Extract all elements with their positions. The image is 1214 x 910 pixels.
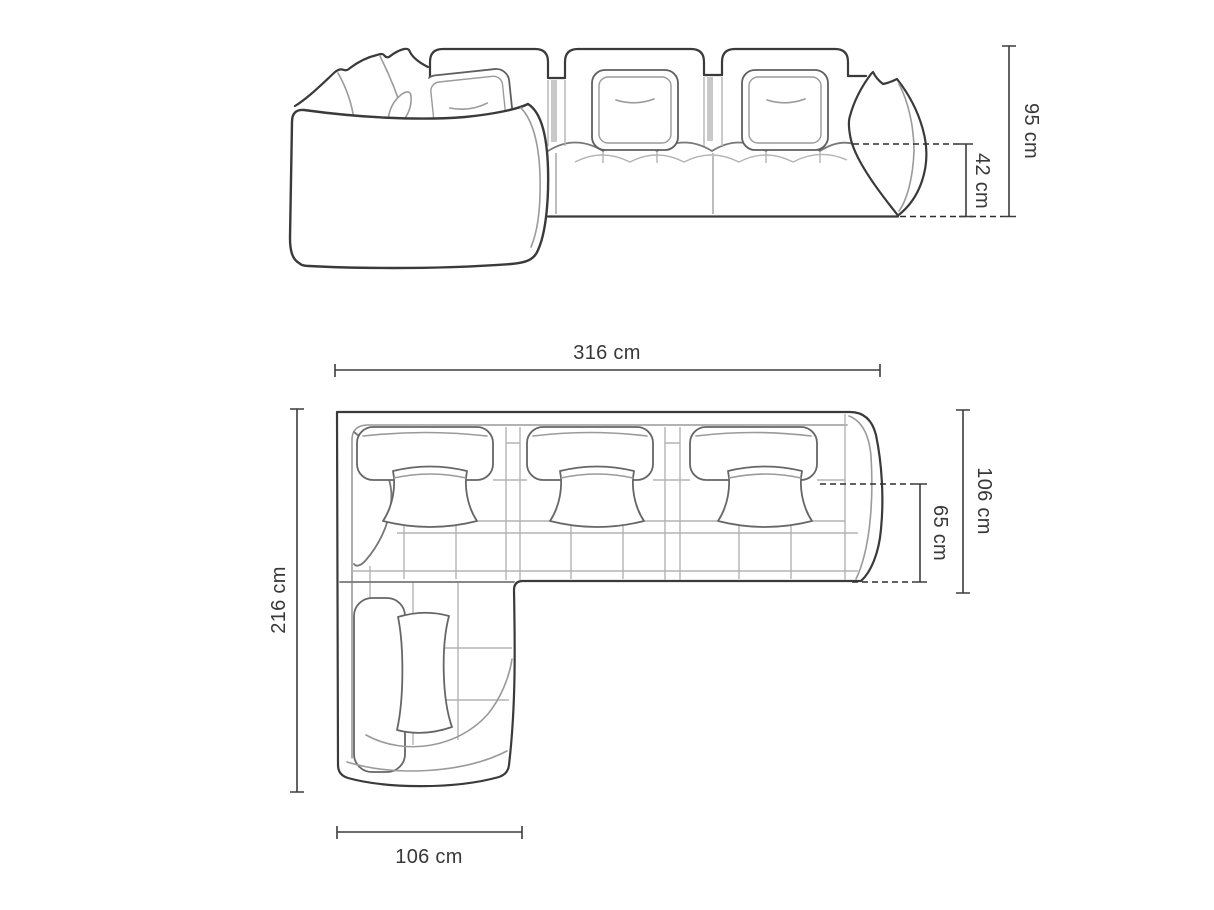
dimension-label-total-height: 95 cm: [1020, 103, 1042, 159]
dimension-line-total-width: [335, 364, 880, 377]
dimension-right-side-depth: 106 cm: [956, 410, 995, 593]
dimension-line-total-depth: [290, 409, 304, 792]
plan-seat-cushion-3: [718, 467, 812, 528]
dimension-label-total-depth: 216 cm: [268, 566, 290, 633]
dimension-line-seat-height: [959, 144, 973, 217]
dimension-line-chaise-width: [337, 826, 522, 839]
back-cushion-3: [742, 70, 828, 150]
dimension-label-chaise-width: 106 cm: [395, 846, 462, 868]
diagram-svg: 95 cm 42 cm: [0, 0, 1214, 910]
dimension-line-total-height: [1002, 46, 1016, 217]
seat-modules-drawing: [548, 143, 898, 217]
chaise-seat-cushion: [397, 613, 452, 733]
dimension-seat-depth: 65 cm: [913, 484, 951, 582]
dimension-label-right-side-depth: 106 cm: [973, 467, 995, 534]
dimension-line-right-side-depth: [956, 410, 970, 593]
backrest-module-3: [704, 49, 866, 150]
module-gap-bar-2: [707, 77, 713, 141]
dimension-line-seat-depth: [913, 484, 927, 582]
dimension-total-width: 316 cm: [335, 342, 880, 377]
plan-seat-cushions: [383, 467, 812, 528]
module-gap-bar-1: [551, 80, 557, 142]
plan-seat-cushion-2: [550, 467, 644, 528]
dimension-chaise-width: 106 cm: [337, 826, 522, 868]
corner-module-drawing: [290, 104, 548, 268]
backrest-module-2: [548, 49, 722, 150]
plan-seat-cushion-1: [383, 467, 477, 528]
sofa-dimension-diagram: 95 cm 42 cm: [0, 0, 1214, 910]
top-view: 316 cm 216 cm 106 cm 65 cm 106 cm: [268, 342, 995, 868]
dimension-total-depth: 216 cm: [268, 409, 304, 792]
dimension-label-total-width: 316 cm: [573, 342, 640, 364]
dimension-label-seat-depth: 65 cm: [929, 505, 951, 561]
dimension-total-height: 95 cm: [1002, 46, 1042, 217]
dimension-label-seat-height: 42 cm: [971, 153, 993, 209]
front-view: 95 cm 42 cm: [290, 46, 1042, 268]
dimension-seat-height: 42 cm: [959, 144, 993, 217]
back-cushion-2: [592, 70, 678, 150]
